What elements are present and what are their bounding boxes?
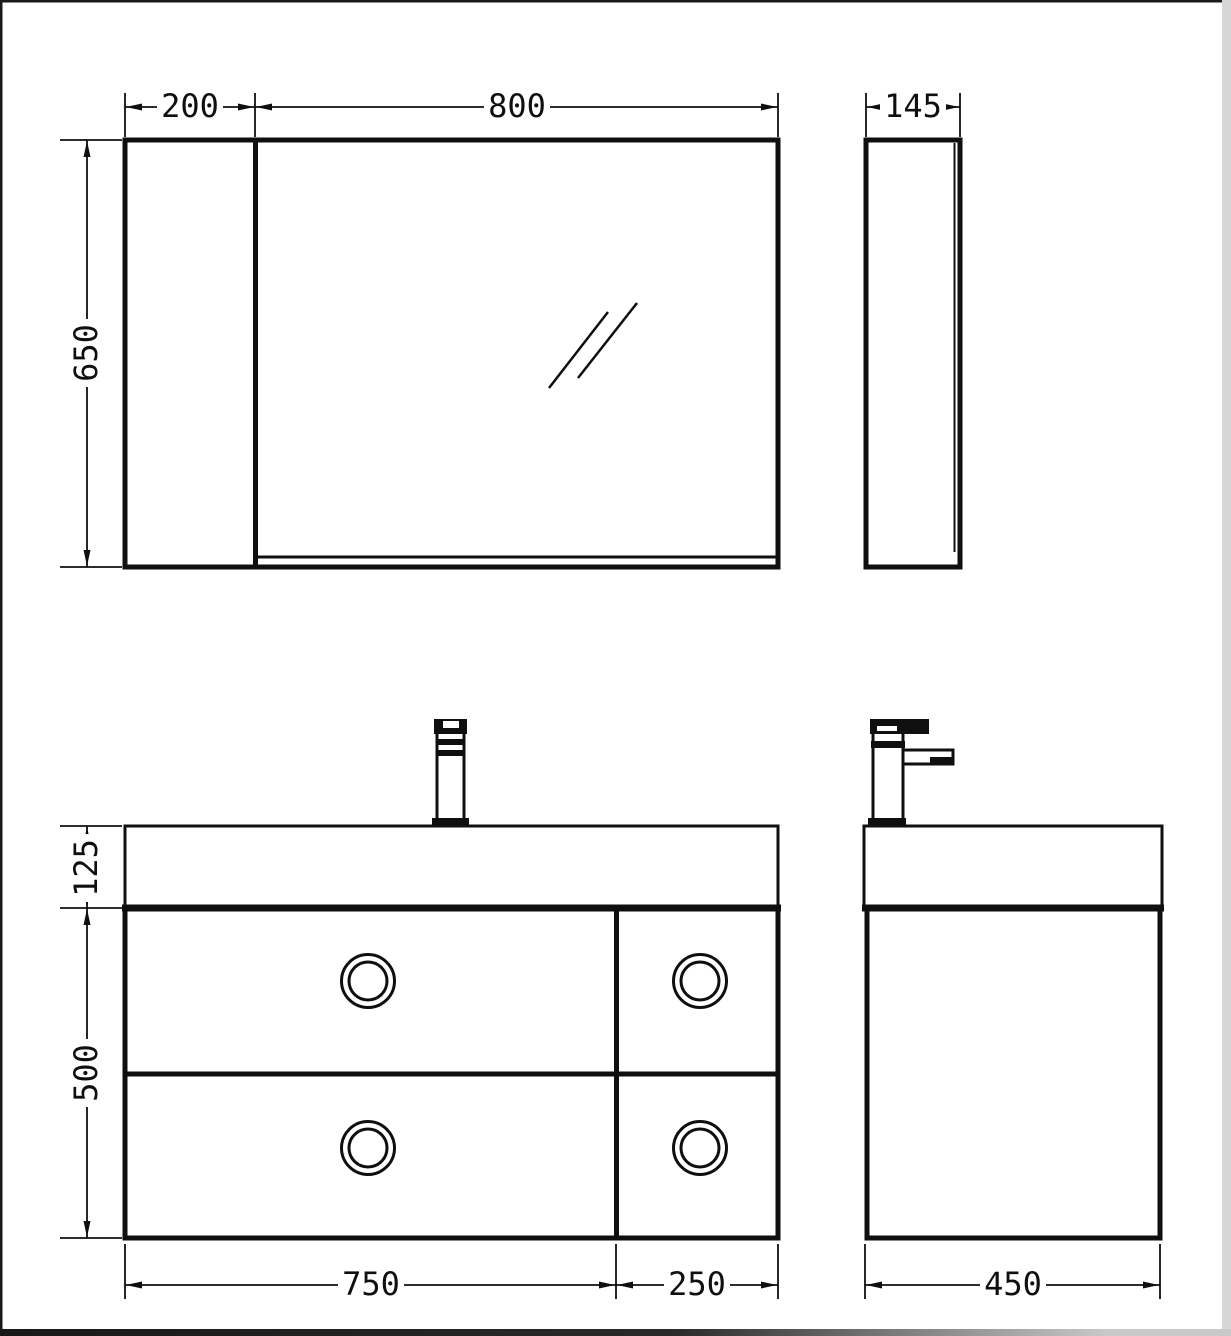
frame-left-edge [0,0,3,1336]
dim-label-cabinet-height: 500 [67,1044,105,1102]
faucet-front-view [432,719,469,826]
faucet-collar-band [871,741,905,748]
dim-label-vanity-depth: 450 [984,1265,1042,1303]
technical-drawing-canvas: 200 800 145 650 [0,0,1231,1336]
faucet-collar-band [436,750,465,756]
dim-label-basin-height: 125 [67,839,105,897]
faucet-spout-tip [930,757,953,765]
frame-right-edge [1222,0,1231,1336]
dim-label-mirror-depth: 145 [884,87,942,125]
faucet-base [868,818,906,826]
dimension-mirror-depth: 145 [866,87,960,125]
faucet-head-notch [443,721,459,728]
dim-label-drawers-right-width: 250 [668,1265,726,1303]
faucet-collar-band [436,739,465,745]
dim-label-mirror-height: 650 [67,324,105,382]
frame-top-edge [0,0,1231,3]
faucet-lever-notch [877,726,897,731]
faucet-base [432,818,469,826]
dim-label-mirror-side-width: 200 [161,87,219,125]
dim-label-drawers-left-width: 750 [342,1265,400,1303]
dim-label-mirror-door-width: 800 [488,87,546,125]
frame-bottom-edge [0,1329,1231,1336]
